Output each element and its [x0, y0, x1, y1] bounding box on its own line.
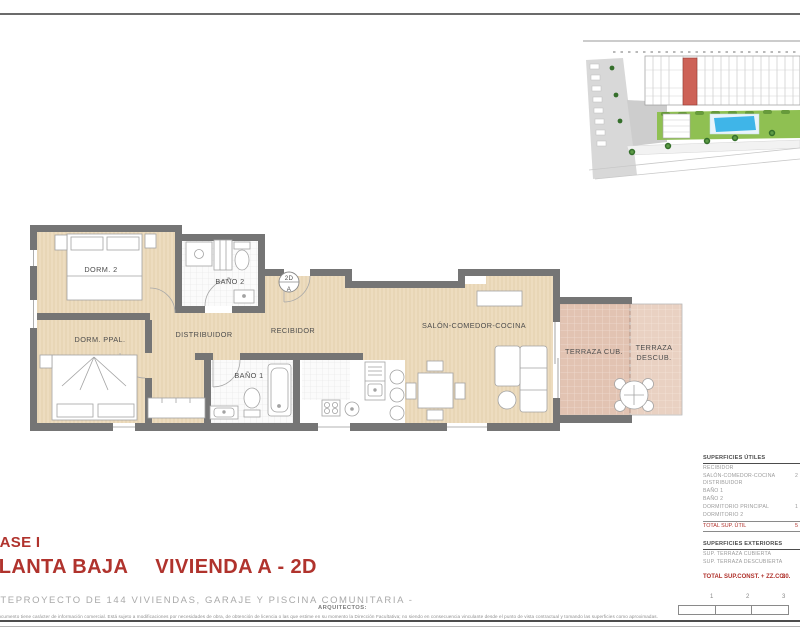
plan-sheet: DORM. 2 BAÑO 2 DORM. PPAL. DISTRIBUIDOR … — [0, 0, 800, 640]
room-label-dorm2: DORM. 2 — [84, 265, 117, 274]
table-row: BAÑO 1 — [703, 489, 800, 494]
table-row: DORMITORIO 2 — [703, 513, 800, 518]
row-label: TOTAL SUP.CONST. + ZZ.CC. — [703, 574, 785, 580]
sheet-top-border — [0, 13, 800, 15]
scale-label-1: 1 — [710, 594, 713, 600]
table-row: DORMITORIO PRINCIPAL 1 — [703, 505, 800, 510]
row-value: 1 — [795, 505, 798, 510]
highlighted-unit — [683, 58, 697, 105]
window — [30, 300, 37, 328]
coffee-table — [498, 391, 516, 409]
unit-marker-bottom: A — [287, 286, 292, 293]
table-row: SALÓN-COMEDOR-COCINA 2 — [703, 474, 800, 479]
floor-name: PLANTA BAJA — [0, 556, 128, 578]
building-row — [645, 56, 800, 105]
toilet-icon — [244, 388, 260, 417]
row-label: TOTAL SUP. ÚTIL — [703, 523, 746, 529]
window — [30, 250, 37, 266]
terrace-table-set — [615, 379, 654, 412]
bano1-sink — [210, 406, 238, 419]
surfaces-table: SUPERFICIES ÚTILES RECIBIDOR SALÓN-COMED… — [703, 455, 800, 580]
stove-icon — [322, 400, 340, 416]
row-label: BAÑO 1 — [703, 488, 723, 494]
row-value: 5 — [795, 524, 798, 530]
room-label-bano1: BAÑO 1 — [234, 371, 263, 380]
fridge-sink-unit — [365, 362, 385, 400]
scale-label-2: 2 — [746, 594, 749, 600]
exteriores-header: SUPERFICIES EXTERIORES — [703, 541, 800, 550]
row-label: DISTRIBUIDOR — [703, 480, 743, 486]
legal-disclaimer: El presente documento tiene carácter de … — [0, 614, 658, 619]
room-label-bano2: BAÑO 2 — [215, 277, 244, 286]
bed-dorm-ppal — [52, 355, 137, 420]
floor-plan: DORM. 2 BAÑO 2 DORM. PPAL. DISTRIBUIDOR … — [28, 218, 688, 433]
row-label: BAÑO 2 — [703, 496, 723, 502]
row-label: DORMITORIO PRINCIPAL — [703, 504, 769, 510]
room-label-terraza-descub-2: DESCUB. — [636, 353, 671, 362]
nightstand — [145, 234, 156, 248]
table-row: RECIBIDOR — [703, 466, 800, 471]
unit-name: VIVIENDA A - 2D — [155, 556, 317, 578]
toilet-icon — [234, 242, 250, 270]
total-util-row: TOTAL SUP. ÚTIL 5 — [703, 521, 800, 532]
bano2-sink — [234, 290, 254, 303]
table-row: BAÑO 2 — [703, 497, 800, 502]
terrace-sliding-door — [553, 322, 560, 398]
site-plan — [583, 28, 800, 180]
row-label: DORMITORIO 2 — [703, 512, 743, 518]
table-row: DISTRIBUIDOR — [703, 481, 800, 486]
left-road — [586, 58, 637, 179]
room-label-dorm-ppal: DORM. PPAL. — [75, 335, 126, 344]
room-label-salon: SALÓN-COMEDOR-COCINA — [422, 321, 526, 330]
bar-stools — [390, 370, 404, 420]
room-label-terraza-cub: TERRAZA CUB. — [565, 347, 623, 356]
row-label: SALÓN-COMEDOR-COCINA — [703, 473, 775, 479]
wardrobe — [148, 398, 205, 418]
room-label-recibidor: RECIBIDOR — [271, 326, 315, 335]
nightstand — [40, 355, 52, 368]
room-label-distribuidor: DISTRIBUIDOR — [175, 330, 232, 339]
row-label: SUP. TERRAZA CUBIERTA — [703, 551, 771, 557]
footer-rule-light — [0, 626, 800, 627]
window — [447, 423, 487, 431]
unit-marker-top: 2D — [285, 275, 294, 282]
footer-rule-dark — [0, 620, 800, 622]
terraza-cub-floor — [560, 304, 630, 415]
shower-icon — [214, 240, 232, 270]
bathtub-icon — [268, 364, 291, 416]
table-row: SUP. TERRAZA DESCUBIERTA — [703, 560, 800, 565]
phase-title: FASE I — [0, 534, 40, 551]
row-label: SUP. TERRAZA DESCUBIERTA — [703, 559, 782, 565]
scale-tick — [751, 606, 752, 614]
grand-total-row: TOTAL SUP.CONST. + ZZ.CC. 80. — [703, 574, 800, 580]
kitchen-counter-tiles — [302, 360, 350, 400]
window — [113, 423, 135, 431]
floor-title: PLANTA BAJAVIVIENDA A - 2D — [0, 556, 317, 579]
table-row: SUP. TERRAZA CUBIERTA — [703, 552, 800, 557]
window — [318, 423, 350, 431]
row-value: 80. — [782, 574, 790, 580]
sideboard — [477, 291, 522, 306]
room-label-terraza-descub-1: TERRAZA — [636, 343, 673, 352]
scale-tick — [715, 606, 716, 614]
garden — [657, 110, 800, 140]
utiles-header: SUPERFICIES ÚTILES — [703, 455, 800, 464]
scale-label-3: 3 — [782, 594, 785, 600]
architects-label: ARQUITECTOS: — [318, 605, 367, 611]
scale-bar — [678, 605, 789, 615]
nightstand — [55, 235, 67, 250]
bano2-vanity — [186, 242, 212, 266]
row-value: 2 — [795, 474, 798, 479]
row-label: RECIBIDOR — [703, 465, 734, 471]
swimming-pool — [714, 116, 756, 132]
kitchen-round-sink — [345, 402, 359, 416]
